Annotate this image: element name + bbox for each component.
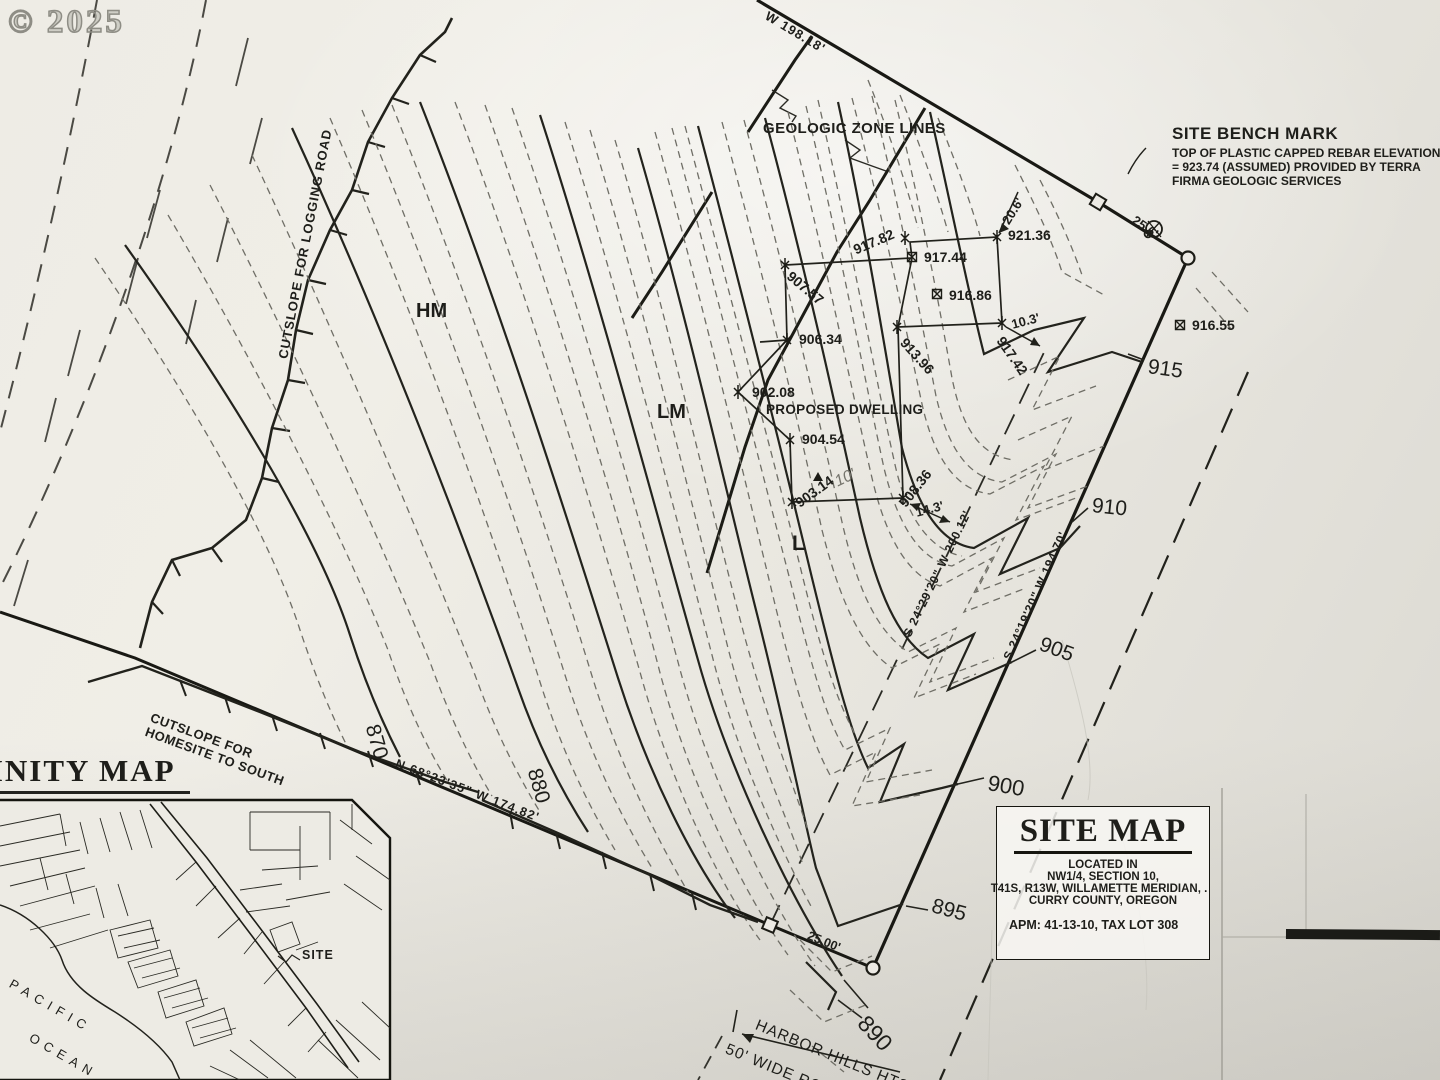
corner-square-marker — [1090, 194, 1106, 210]
proposed-dwelling-footprint — [738, 237, 1002, 502]
zone-label-l: L — [792, 532, 805, 556]
benchmark-line3: FIRMA GEOLOGIC SERVICES — [1172, 175, 1341, 189]
spot-elevation: 906.34 — [799, 331, 842, 347]
geologic-zone-lines — [632, 36, 925, 573]
spot-elevation: 904.54 — [802, 431, 845, 447]
title-block-sub3: T41S, R13W, WILLAMETTE MERIDIAN, . — [989, 883, 1209, 895]
road-centerline-dashed — [940, 372, 1248, 1080]
vicinity-map — [0, 800, 390, 1080]
zone-label-lm: LM — [657, 401, 686, 424]
spot-elevation: 917.44 — [924, 249, 967, 265]
vicinity-map-title: VICINITY MAP — [0, 753, 190, 794]
title-block-folds — [1222, 788, 1440, 1080]
benchmark-title: SITE BENCH MARK — [1172, 124, 1338, 144]
spot-elevation: 902.08 — [752, 384, 795, 400]
geologic-zone-label: GEOLOGIC ZONE LINES — [763, 120, 946, 137]
title-block-sub2: NW1/4, SECTION 10, — [997, 871, 1209, 883]
contour-label-915: 915 — [1146, 355, 1184, 384]
benchmark-line1: TOP OF PLASTIC CAPPED REBAR ELEVATION — [1172, 147, 1440, 161]
vicinity-map-frame — [0, 800, 390, 1080]
contour-label-910: 910 — [1091, 494, 1128, 522]
logging-road-dashes — [0, 0, 262, 606]
spot-elevation: 921.36 — [1008, 227, 1051, 243]
title-block-sub4: CURRY COUNTY, OREGON — [997, 895, 1209, 907]
spot-elevation: 916.86 — [949, 287, 992, 303]
proposed-dwelling-label: PROPOSED DWELLING — [766, 402, 923, 418]
spot-elevation: 916.55 — [1192, 317, 1235, 333]
site-map-scan: © 2025 W 198.18' SITE BENCH MARK TOP OF … — [0, 0, 1440, 1080]
corner-circle-marker — [1182, 252, 1195, 265]
corner-circle-marker — [867, 962, 880, 975]
corner-square-marker — [762, 917, 778, 933]
title-block-title: SITE MAP — [1014, 811, 1193, 854]
roadway-edge-dash — [698, 1036, 722, 1080]
zone-label-hm: HM — [416, 300, 447, 323]
title-block-apm: APM: 41-13-10, TAX LOT 308 — [997, 918, 1209, 932]
copyright-watermark: © 2025 — [8, 4, 125, 42]
benchmark-line2: = 923.74 (ASSUMED) PROVIDED BY TERRA — [1172, 161, 1421, 175]
vicinity-site-label: SITE — [302, 948, 334, 962]
title-block-sub1: LOCATED IN — [997, 859, 1209, 871]
title-block: SITE MAP LOCATED IN NW1/4, SECTION 10, T… — [996, 806, 1210, 960]
